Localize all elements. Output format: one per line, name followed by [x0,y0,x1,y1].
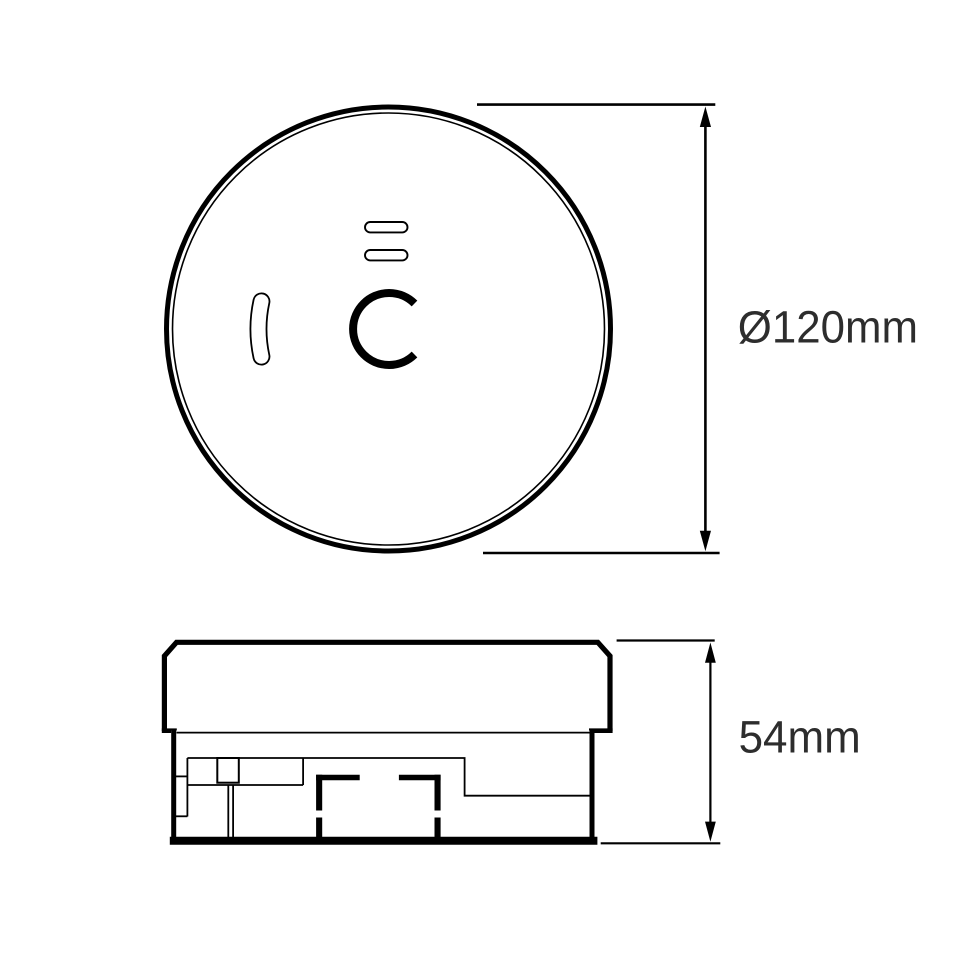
svg-text:Ø120mm: Ø120mm [738,303,918,353]
svg-text:54mm: 54mm [739,713,861,763]
